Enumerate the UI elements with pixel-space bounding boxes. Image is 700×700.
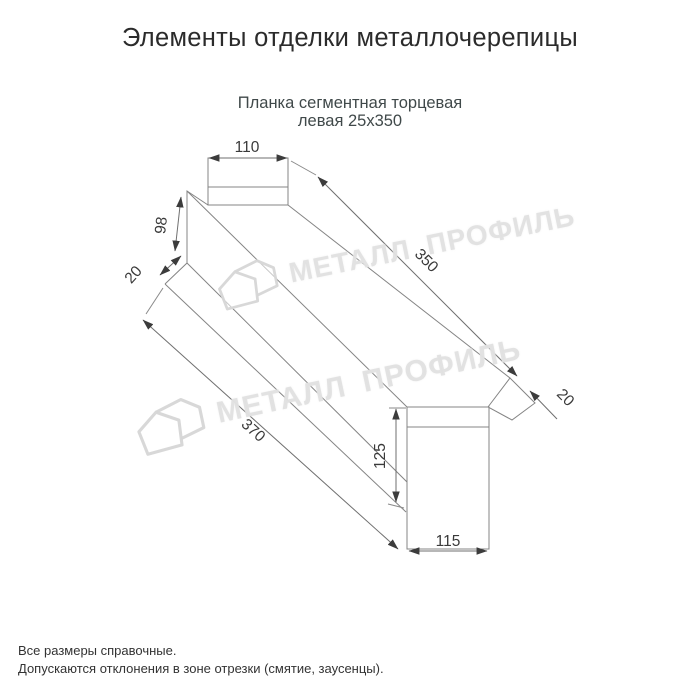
dimension-label: 350: [411, 246, 442, 277]
long-fold-upper: [187, 191, 407, 407]
dimension-label: 110: [235, 139, 260, 156]
left-end-face: [208, 158, 288, 205]
product-drawing-page: Элементы отделки металлочерепицы Планка …: [0, 0, 700, 700]
dimension-125: 125: [372, 408, 406, 508]
footer-note-2: Допускаются отклонения в зоне отрезки (с…: [18, 660, 384, 678]
technical-drawing: 110 98 20 350 20 370 125: [0, 0, 700, 700]
right-lip-face: [488, 378, 535, 420]
part-outline: [165, 158, 535, 549]
dimension-label: 125: [372, 443, 389, 469]
extension-line: [291, 161, 316, 175]
extension-line: [146, 288, 163, 314]
dimension-110: 110: [209, 139, 287, 158]
dimension-label: 20: [122, 263, 146, 287]
dimension-98: 98: [152, 197, 181, 251]
long-edge-top: [288, 205, 510, 378]
dimension-label: 370: [238, 416, 269, 446]
long-edge-bottom: [165, 284, 406, 512]
dimension-20-left: 20: [122, 256, 181, 287]
footer-note-1: Все размеры справочные.: [18, 642, 384, 660]
dimension-line: [530, 391, 557, 419]
dimension-label: 98: [152, 216, 171, 235]
dimension-20-right: 20: [530, 386, 578, 419]
dimension-115: 115: [409, 533, 487, 551]
dimension-label: 115: [436, 533, 461, 550]
dimension-370: 370: [143, 288, 398, 549]
right-end-face: [407, 407, 489, 549]
dimension-label: 20: [553, 386, 577, 410]
dimension-350: 350: [291, 161, 517, 376]
footer-notes: Все размеры справочные. Допускаются откл…: [18, 642, 384, 678]
dimension-line: [318, 177, 517, 376]
dimension-line: [175, 197, 181, 251]
extension-line-bottom: [388, 504, 404, 508]
